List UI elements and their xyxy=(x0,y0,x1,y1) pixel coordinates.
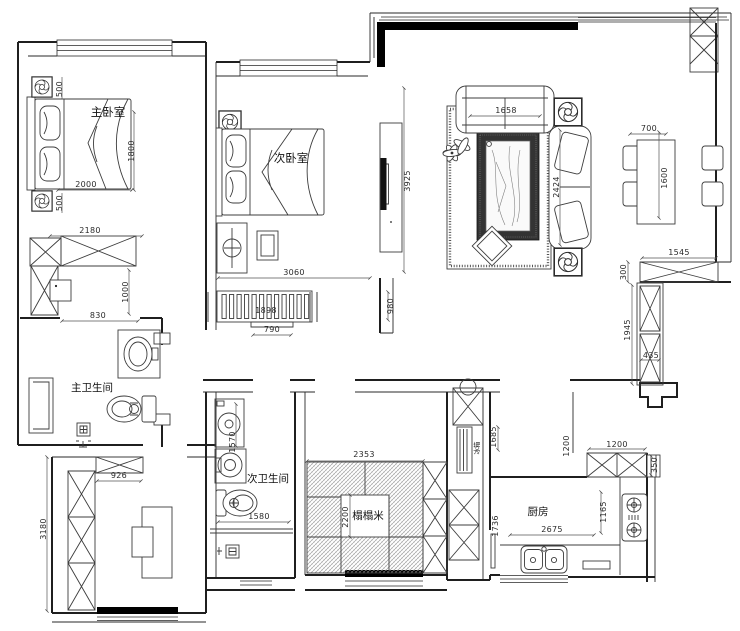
dim-kitchen-d: 1165 xyxy=(599,501,608,523)
dim-closet-h: 1000 xyxy=(121,281,130,303)
kitchen-hall-cabinet xyxy=(587,453,647,477)
master-bath-cabinet xyxy=(29,378,53,433)
dining-side-cabinet xyxy=(640,262,718,282)
master-bath-drain xyxy=(76,423,91,447)
speaker-icon-top xyxy=(554,98,582,126)
ac-fan-icon-bottom xyxy=(32,191,52,211)
room-label-second-bathroom: 次卫生间 xyxy=(247,472,289,485)
room-label-kitchen: 厨房 xyxy=(528,505,549,518)
dim-radiator-w: 790 xyxy=(264,325,280,334)
bath2-window xyxy=(240,581,272,585)
dim-sofa-h: 2424 xyxy=(552,176,561,198)
dim-kitchen-h: 1736 xyxy=(491,515,500,537)
dim-bath-door: 830 xyxy=(90,311,106,320)
dim-tatami-w: 2353 xyxy=(353,450,375,459)
master-bedroom-window xyxy=(57,40,172,56)
dim-dining-h: 1600 xyxy=(660,167,669,189)
bedside-lamp xyxy=(217,223,247,273)
bath2-shower-divider xyxy=(210,529,293,533)
speaker-icon-bottom xyxy=(554,248,582,276)
label-fridge: 冰箱 xyxy=(472,441,481,455)
room-label-master-bedroom: 主卧室 xyxy=(91,105,126,119)
dim-bed-w: 2000 xyxy=(75,180,97,189)
dim-hall-wall: 1200 xyxy=(562,435,571,457)
left-room-desk xyxy=(132,507,172,578)
dim-left-room-w: 926 xyxy=(111,471,127,480)
dim-kitchen-cab-w: 1200 xyxy=(606,440,628,449)
dim-cab-tall-h: 1945 xyxy=(623,319,632,341)
dim-dining-w: 700 xyxy=(641,124,657,133)
dim-bed-h: 1800 xyxy=(127,140,136,162)
floor-plan-page: 500 500 1800 2000 2180 1000 830 3180 926… xyxy=(0,0,740,631)
dim-tatami-h: 2200 xyxy=(341,506,350,528)
bath2-sink xyxy=(215,449,246,483)
floor-plan-canvas: 500 500 1800 2000 2180 1000 830 3180 926… xyxy=(0,0,740,631)
ac-fan-icon-top xyxy=(32,77,52,97)
dim-cab-right-d: 300 xyxy=(619,264,628,280)
dim-kitchen-win: 350 xyxy=(650,457,659,473)
bath2-drain xyxy=(217,545,239,558)
entry-cabinet-bottom xyxy=(449,490,479,560)
dining-table xyxy=(637,140,675,224)
rug-marble-center xyxy=(486,141,530,231)
dim-cab-tall-w: 435 xyxy=(643,351,659,360)
balcony-window xyxy=(578,13,716,22)
hall-radiator xyxy=(457,427,472,473)
kitchen-window xyxy=(500,576,568,583)
dining-set xyxy=(623,140,723,224)
second-bedroom-window xyxy=(240,60,337,76)
right-tall-cabinet xyxy=(637,283,663,385)
dim-left-room-h: 3180 xyxy=(39,518,48,540)
entry-cabinet-top xyxy=(453,379,483,425)
room-label-master-bathroom: 主卫生间 xyxy=(71,381,113,394)
room-label-second-bedroom: 次卧室 xyxy=(274,151,309,165)
dim-tv-wall-low: 980 xyxy=(386,298,395,314)
dim-bath2-w: 1580 xyxy=(248,512,270,521)
fixtures xyxy=(29,330,647,575)
dim-closet-w: 2180 xyxy=(79,226,101,235)
master-bath-toilet xyxy=(107,396,156,422)
kitchen-stove xyxy=(622,494,647,541)
tv-icon xyxy=(381,158,387,210)
kitchen-sliding-door xyxy=(491,534,495,568)
tatami-wardrobe xyxy=(423,462,447,573)
dim-bed2-w: 3060 xyxy=(283,268,305,277)
tv-wall xyxy=(380,123,402,252)
dim-sofa-w: 1658 xyxy=(495,106,517,115)
dim-radiator: 1898 xyxy=(255,306,277,315)
dim-ac-top: 500 xyxy=(55,81,64,97)
dim-ac-bottom: 500 xyxy=(55,195,64,211)
dim-bath2-h: 1570 xyxy=(228,431,237,453)
dim-cab-right-w: 1545 xyxy=(668,248,690,257)
dim-kitchen-w: 2675 xyxy=(541,525,563,534)
room-label-tatami: 榻榻米 xyxy=(352,509,384,522)
kitchen-sink xyxy=(521,546,567,573)
second-bed xyxy=(216,128,324,216)
dim-entry-h: 1685 xyxy=(489,426,498,448)
left-room-window xyxy=(97,607,178,621)
dim-tv-wall-h: 3925 xyxy=(403,170,412,192)
